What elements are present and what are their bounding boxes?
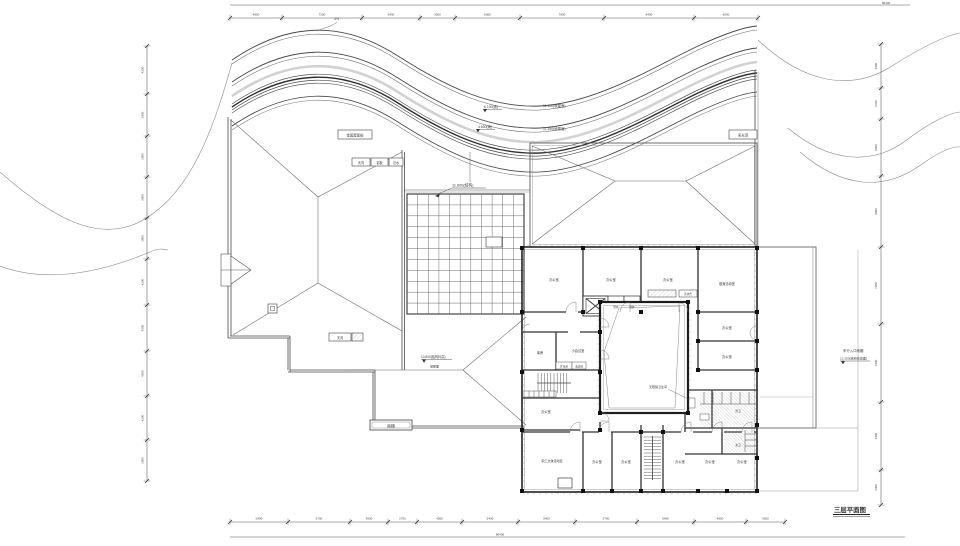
column-dot	[686, 411, 690, 415]
column-dot	[639, 310, 643, 314]
dim-value: 3300	[874, 484, 878, 491]
wc-label: 男卫	[735, 409, 741, 413]
overall-dim-top: 86400	[882, 1, 891, 5]
column-dot	[696, 489, 700, 493]
skylight-elev: 11.600(结构)	[452, 183, 474, 188]
room-label: 办公室	[663, 277, 673, 282]
dim-value: 3900	[874, 62, 878, 69]
column-dot	[755, 368, 759, 372]
dim-value: 5400	[487, 517, 494, 521]
dim-value: 5400	[256, 517, 263, 521]
canopy-label: 雨棚	[387, 422, 395, 428]
dim-value: 5700	[316, 517, 323, 521]
column-dot	[755, 310, 759, 314]
column-dot	[520, 370, 524, 374]
dim-value: 5400	[662, 517, 669, 521]
drawing-title-block: 三层平面图	[833, 505, 870, 516]
room-label: 职工文体活动室	[541, 458, 562, 463]
left-gutter-callout: 天沟	[337, 335, 343, 340]
roof-panel-callout: 金属屋面板	[347, 133, 365, 138]
lower-roof-elev-sub: 坡屋面	[430, 364, 439, 369]
wave-roof-curve	[232, 73, 757, 153]
overall-dimensions: 86400 86400	[230, 1, 910, 537]
column-dot	[696, 310, 700, 314]
dim-value: 4200	[436, 517, 443, 521]
dim-value: 4800	[253, 13, 260, 17]
column-dot	[696, 246, 700, 250]
flashing-callout: 泛水	[393, 160, 400, 165]
column-dot	[755, 489, 759, 493]
wave-roof-curve	[232, 30, 757, 110]
column-dot	[520, 310, 524, 314]
dim-value: 5400	[388, 13, 395, 17]
column-dot	[639, 246, 643, 250]
room-label: 库房	[537, 350, 543, 355]
wave-elev-2: 11.150(坡屋面)	[543, 103, 566, 108]
column-dot	[598, 300, 602, 304]
column-dot	[598, 330, 602, 334]
column-dot	[755, 339, 759, 343]
duct-box	[558, 478, 572, 488]
column-dot	[639, 489, 643, 493]
counter-label: 茶水台	[684, 292, 692, 296]
shaft-label: 管井	[629, 305, 635, 309]
column-dot	[725, 489, 729, 493]
staircase-south	[644, 436, 661, 480]
column-dot	[581, 489, 585, 493]
wc-label: 女卫	[735, 443, 741, 447]
dim-value: 3000	[434, 13, 441, 17]
dim-value: 6600	[874, 208, 878, 215]
skylight-grid	[404, 190, 530, 314]
room-label: 办公室	[592, 459, 602, 464]
cad-floor-plan-sheet: 雨棚	[0, 0, 960, 546]
column-dot	[598, 428, 602, 432]
room-label: 健身活动室	[719, 281, 735, 286]
dim-value: 3900	[141, 111, 145, 118]
gutter-callout: 天沟	[358, 160, 364, 165]
terrace-plan	[757, 247, 858, 491]
dim-value: 4200	[141, 324, 145, 331]
column-dot	[755, 423, 759, 427]
column-dot	[520, 489, 524, 493]
dim-value: 4200	[141, 370, 145, 377]
dim-value: 7200	[874, 359, 878, 366]
dim-value: 6000	[484, 13, 491, 17]
terrace-label: 车行入口雨棚	[843, 348, 864, 353]
column-dot	[598, 411, 602, 415]
slope-label: 4%	[334, 17, 340, 21]
roof-hatch-symbol	[268, 304, 277, 313]
wave-elev-3: 4.600(坡)	[478, 124, 492, 129]
room-label: 办公室	[705, 459, 715, 464]
column-dot	[661, 489, 665, 493]
overall-dim-bottom: 86400	[496, 533, 505, 537]
room-label: 办公室	[541, 409, 551, 414]
room-label: 办公室	[606, 277, 616, 282]
skylight-callout: 采光顶	[738, 133, 749, 138]
column-dot	[581, 246, 585, 250]
right-building-roof-plan	[530, 70, 758, 247]
canopy-callout-box: 雨棚	[370, 420, 412, 430]
column-dot	[598, 370, 602, 374]
drawing-title: 三层平面图	[834, 505, 866, 514]
elevation-annotations: 6.100(坡) 11.150(坡屋面) 4.600(坡) 11.150(坡屋面…	[317, 17, 870, 400]
column-dot	[686, 300, 690, 304]
dim-value: 4200	[141, 66, 145, 73]
dim-value: 4800	[717, 517, 724, 521]
roof-vent-box	[486, 237, 502, 247]
room-label: 清洁间	[575, 364, 583, 368]
column-dot	[696, 339, 700, 343]
wave-elev-1: 6.100(坡)	[484, 104, 498, 109]
accessible-wc-label: 无障碍卫生间	[649, 384, 667, 389]
column-dot	[755, 456, 759, 460]
dim-value: 2700	[399, 517, 406, 521]
dim-value: 8400	[646, 13, 653, 17]
dim-value: 6000	[723, 13, 730, 17]
column-dot	[610, 489, 614, 493]
terrace-elev: 12.350(结构完成面)	[840, 356, 867, 361]
dim-value: 7800	[559, 13, 566, 17]
shaft-label: 管井	[613, 305, 619, 309]
column-dot	[696, 368, 700, 372]
alum-callout: 铝板	[376, 160, 383, 165]
dim-value: 7200	[319, 13, 326, 17]
central-courtyard	[600, 302, 688, 413]
dim-value: 5400	[874, 144, 878, 151]
wave-elev-4: 11.150(坡屋面)	[543, 126, 566, 131]
room-label: 小会议室	[572, 348, 585, 353]
lower-roof-plan	[345, 317, 526, 425]
column-dot	[661, 430, 665, 434]
lower-roof-elev: 10.800(结构标高)	[421, 354, 446, 359]
dim-value: 3600	[366, 517, 373, 521]
dim-value: 3900	[141, 457, 145, 464]
dim-value: 3600	[762, 517, 769, 521]
staircase-west	[537, 373, 571, 393]
dim-value: 5700	[603, 517, 610, 521]
room-label: 办公室	[737, 459, 747, 464]
dim-value: 3900	[141, 235, 145, 242]
dimension-strings: 4800720054003000600078008400600054005700…	[141, 13, 885, 526]
wave-canopy-roof	[232, 26, 757, 176]
dim-value: 4200	[141, 278, 145, 285]
dim-value: 3900	[141, 153, 145, 160]
dim-value: 2700	[874, 100, 878, 107]
room-label: 办公室	[722, 325, 732, 330]
dim-value: 5400	[543, 517, 550, 521]
room-label: 办公室	[722, 354, 732, 359]
floor-plan-drawing: 雨棚	[0, 0, 960, 546]
wave-roof-curve	[232, 76, 757, 156]
room-label: 办公室	[621, 459, 631, 464]
dim-value: 7200	[874, 282, 878, 289]
room-label: 办公室	[549, 277, 559, 282]
column-dot	[639, 430, 643, 434]
column-dot	[755, 246, 759, 250]
dim-value: 6300	[874, 432, 878, 439]
column-dot	[520, 428, 524, 432]
room-label: 开水间	[560, 364, 568, 368]
column-dot	[520, 246, 524, 250]
locker-row	[524, 391, 556, 397]
column-dot	[581, 310, 585, 314]
room-label: 办公室	[675, 459, 685, 464]
dim-value: 4200	[141, 414, 145, 421]
dim-value: 3900	[141, 194, 145, 201]
